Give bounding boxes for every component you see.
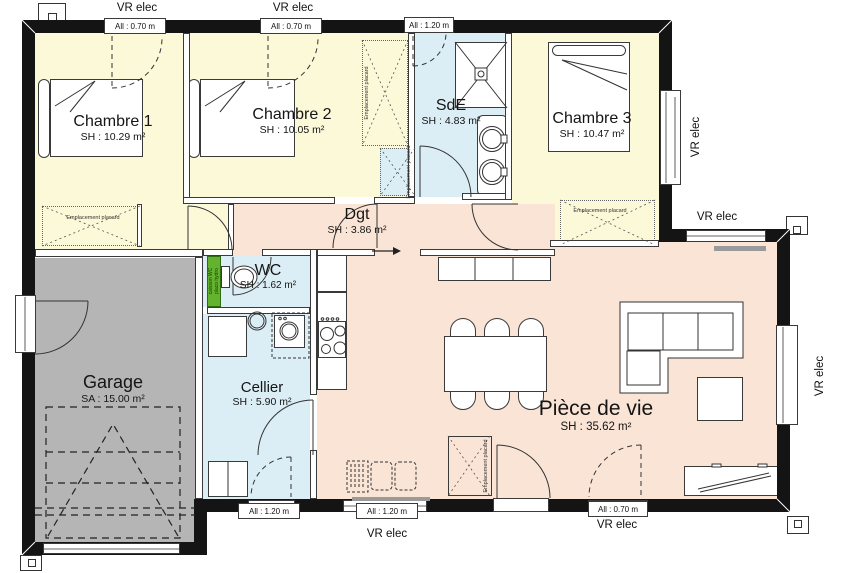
room-label-chambre1: Chambre 1SH : 10.29 m² bbox=[43, 113, 183, 143]
dining-table bbox=[444, 336, 547, 392]
placard-label-entree: Emplacement placard bbox=[483, 431, 491, 501]
garage-door-opening bbox=[43, 543, 180, 554]
toilet-tank-wc bbox=[221, 266, 230, 288]
room-label-chambre2: Chambre 2SH : 10.05 m² bbox=[222, 106, 362, 136]
sill-label-cuisine: All : 1.20 m bbox=[356, 503, 418, 519]
wall-wc-cellier bbox=[207, 307, 310, 314]
sill-label-chambre2: All : 0.70 m bbox=[260, 18, 322, 34]
wall-placard1-stub bbox=[137, 204, 142, 247]
wall-sde-chambre3 bbox=[505, 33, 512, 200]
room-label-piece-de-vie: Pièce de vieSH : 35.62 m² bbox=[496, 397, 696, 434]
wall-wc-top-left bbox=[203, 249, 233, 256]
placard-chambre1 bbox=[42, 206, 140, 246]
placard-label-chambre2: Emplacement placard bbox=[364, 48, 372, 138]
window-chambre3-right bbox=[660, 90, 681, 185]
window-piece-de-vie-top bbox=[686, 230, 766, 242]
placard-label-sde: Emplacement placard bbox=[406, 132, 414, 212]
wall-dgt-bottom-right bbox=[420, 249, 555, 256]
room-label-garage: GarageSA : 15.00 m² bbox=[43, 372, 183, 405]
placard-label-chambre1: Emplacement placard bbox=[50, 215, 136, 221]
wall-cellier-right-lower bbox=[310, 450, 317, 499]
counter-cellier bbox=[208, 316, 247, 357]
entry-door-threshold bbox=[493, 498, 549, 512]
dining-chair bbox=[484, 318, 510, 337]
entry-cabinet-row bbox=[438, 257, 551, 281]
downspout-top-left bbox=[38, 3, 66, 21]
shutter-label-chambre2: VR elec bbox=[268, 2, 318, 14]
caisson-wc-label-line2: placo hydro bbox=[214, 258, 220, 304]
wall-dgt-chambre1-stub bbox=[228, 204, 234, 250]
wall-wc-top-right bbox=[262, 249, 317, 256]
shutter-label-piece-de-vie-top: VR elec bbox=[692, 211, 742, 223]
shutter-label-chambre3: VR elec bbox=[690, 112, 704, 162]
shutter-label-piece-de-vie-right: VR elec bbox=[814, 351, 828, 401]
window-piece-de-vie-right bbox=[776, 325, 798, 425]
wall-garage-right bbox=[195, 257, 203, 499]
downspout-bottom-left bbox=[20, 555, 42, 571]
tv-sideboard bbox=[684, 466, 784, 496]
wall-left bbox=[22, 20, 35, 555]
downspout-bottom-right bbox=[787, 516, 809, 534]
sill-label-piece-de-vie: All : 0.70 m bbox=[588, 501, 648, 517]
room-label-sde: SdESH : 4.83 m² bbox=[411, 97, 491, 127]
floor-chambre1-door-recess bbox=[183, 204, 233, 249]
base-cabinet-cellier bbox=[208, 461, 248, 497]
room-label-wc: WCSH : 1.62 m² bbox=[230, 262, 306, 292]
wall-dgt-bottom-left bbox=[317, 249, 375, 256]
hob-cuisine bbox=[318, 321, 346, 358]
placard-label-chambre3: Emplacement placard bbox=[555, 208, 645, 214]
wall-cellier-right-upper bbox=[310, 249, 317, 395]
wall-chambre1-chambre2 bbox=[183, 33, 190, 203]
sill-label-sde: All : 1.20 m bbox=[404, 17, 454, 33]
room-label-cellier: CellierSH : 5.90 m² bbox=[192, 379, 332, 408]
bed-pillow-chambre3 bbox=[552, 45, 626, 56]
garage-service-door-opening bbox=[15, 295, 36, 353]
sill-label-cellier: All : 1.20 m bbox=[238, 503, 300, 519]
floor-plan: All : 0.70 m All : 0.70 m All : 1.20 m A… bbox=[0, 0, 851, 573]
shutter-label-chambre1: VR elec bbox=[112, 2, 162, 14]
shutter-label-cuisine: VR elec bbox=[362, 528, 412, 540]
shutter-label-piece-de-vie-bottom: VR elec bbox=[592, 519, 642, 531]
wall-chambre3-bottom bbox=[550, 240, 659, 247]
washing-machine-cellier bbox=[274, 315, 305, 348]
fridge-cuisine bbox=[317, 252, 347, 292]
sill-label-chambre1: All : 0.70 m bbox=[104, 18, 166, 34]
wall-garage-top bbox=[35, 249, 203, 257]
placard-chambre3 bbox=[560, 200, 655, 245]
dining-chair bbox=[450, 318, 476, 337]
room-label-chambre3: Chambre 3SH : 10.47 m² bbox=[522, 110, 662, 140]
wall-chambre2-bottom bbox=[183, 197, 335, 204]
coffee-table bbox=[697, 377, 743, 421]
dining-chair bbox=[518, 318, 544, 337]
